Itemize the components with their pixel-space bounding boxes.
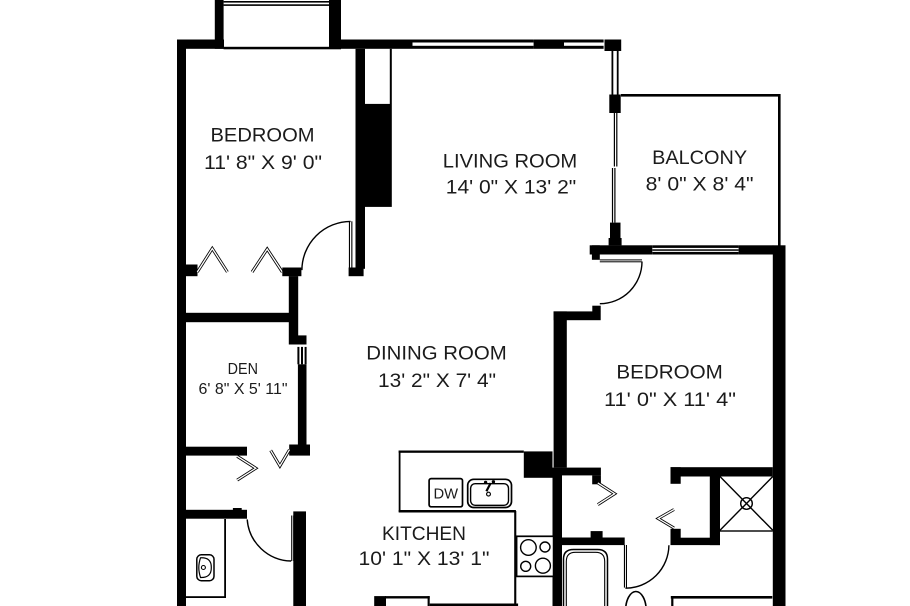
svg-text:LIVING ROOM: LIVING ROOM	[443, 151, 578, 173]
svg-text:11' 8" X 9' 0": 11' 8" X 9' 0"	[204, 152, 322, 174]
svg-text:BALCONY: BALCONY	[652, 147, 747, 169]
svg-text:6' 8" X 5' 11": 6' 8" X 5' 11"	[199, 381, 288, 398]
svg-text:13' 2" X 7' 4": 13' 2" X 7' 4"	[378, 370, 496, 392]
svg-text:DINING ROOM: DINING ROOM	[366, 343, 507, 365]
svg-text:10' 1" X 13' 1": 10' 1" X 13' 1"	[359, 548, 490, 570]
svg-text:11' 0" X 11' 4": 11' 0" X 11' 4"	[604, 389, 736, 411]
svg-text:14' 0" X 13' 2": 14' 0" X 13' 2"	[446, 177, 577, 199]
svg-text:BEDROOM: BEDROOM	[616, 362, 723, 384]
svg-text:8' 0" X 8' 4": 8' 0" X 8' 4"	[646, 174, 754, 196]
svg-text:DEN: DEN	[228, 361, 258, 378]
svg-text:BEDROOM: BEDROOM	[211, 125, 315, 147]
svg-text:DW: DW	[434, 485, 459, 502]
svg-text:KITCHEN: KITCHEN	[382, 523, 466, 545]
